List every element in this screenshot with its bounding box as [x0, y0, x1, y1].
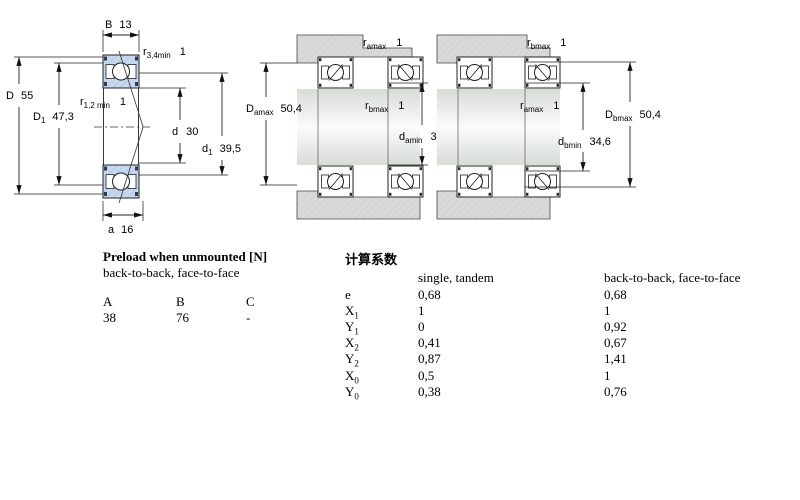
bearing-section-bottom	[103, 165, 139, 198]
dim-label-D1: D147,3	[33, 111, 74, 125]
mounting-drawing-a: Damax50,4 damin34,6 ramax1 rbmax1	[246, 35, 452, 219]
factor-value-btb: 1	[604, 303, 611, 319]
dim-label-dbmin: dbmin34,6	[558, 136, 611, 150]
dim-label-Damax: Damax50,4	[246, 103, 302, 117]
factors-title: 计算系数	[345, 249, 397, 268]
dim-label-B: B13	[105, 19, 132, 31]
dimension-B	[103, 30, 139, 52]
factors-col-single: single, tandem	[418, 270, 494, 286]
factor-value-btb: 0,67	[604, 335, 627, 351]
factor-value-btb: 1,41	[604, 351, 627, 367]
dimension-D	[14, 57, 103, 194]
preload-col-C: C	[246, 294, 255, 310]
preload-col-A: A	[103, 294, 112, 310]
dim-label-rbmax: rbmax1	[527, 37, 566, 51]
dimension-Damax	[260, 63, 297, 185]
factor-value-single: 0,87	[418, 351, 441, 367]
factor-row-label: X0	[345, 368, 359, 386]
factor-value-single: 0,41	[418, 335, 441, 351]
factor-row-label: e	[345, 287, 351, 305]
preload-value-B: 76	[176, 310, 189, 326]
dimension-d	[139, 88, 186, 163]
factor-value-single: 0,38	[418, 384, 441, 400]
factors-col-btb: back-to-back, face-to-face	[604, 270, 740, 286]
factor-row-label: X2	[345, 335, 359, 353]
factor-value-btb: 1	[604, 368, 611, 384]
dim-label-a: a16	[108, 224, 133, 236]
factor-row-label: X1	[345, 303, 359, 321]
dim-label-r34min: r3,4min1	[143, 46, 186, 60]
factor-row-label: Y2	[345, 351, 359, 369]
factor-value-btb: 0,76	[604, 384, 627, 400]
factor-row-label: Y1	[345, 319, 359, 337]
mounting-drawing-b: dbmin34,6 Dbmax50,4 rbmax1 ramax1	[437, 35, 661, 219]
bearing-pair-bottom	[318, 166, 423, 197]
preload-subtitle: back-to-back, face-to-face	[103, 265, 239, 281]
dim-label-d: d30	[172, 126, 198, 138]
shaft-section	[437, 89, 560, 165]
dimension-a	[103, 201, 143, 221]
factor-value-single: 0,5	[418, 368, 434, 384]
dimension-D1	[54, 63, 103, 185]
factor-value-btb: 0,92	[604, 319, 627, 335]
dim-label-Dbmax: Dbmax50,4	[605, 109, 661, 123]
preload-value-C: -	[246, 310, 250, 326]
bearing-datasheet: B13 r3,4min1 D55 D147,3 r1,2 min1 d3	[0, 0, 800, 500]
factor-value-single: 0,68	[418, 287, 441, 303]
factor-value-single: 1	[418, 303, 425, 319]
dim-label-d1: d139,5	[202, 143, 241, 157]
preload-col-B: B	[176, 294, 185, 310]
single-bearing-drawing: B13 r3,4min1 D55 D147,3 r1,2 min1 d3	[6, 19, 241, 236]
dim-label-ramax: ramax1	[363, 37, 402, 51]
factor-row-label: Y0	[345, 384, 359, 402]
bearing-section-top	[103, 55, 139, 88]
factor-value-btb: 0,68	[604, 287, 627, 303]
dim-label-r12min: r1,2 min1	[80, 96, 126, 110]
preload-value-A: 38	[103, 310, 116, 326]
dim-label-D: D55	[6, 90, 33, 102]
factor-value-single: 0	[418, 319, 425, 335]
preload-title: Preload when unmounted [N]	[103, 249, 267, 265]
